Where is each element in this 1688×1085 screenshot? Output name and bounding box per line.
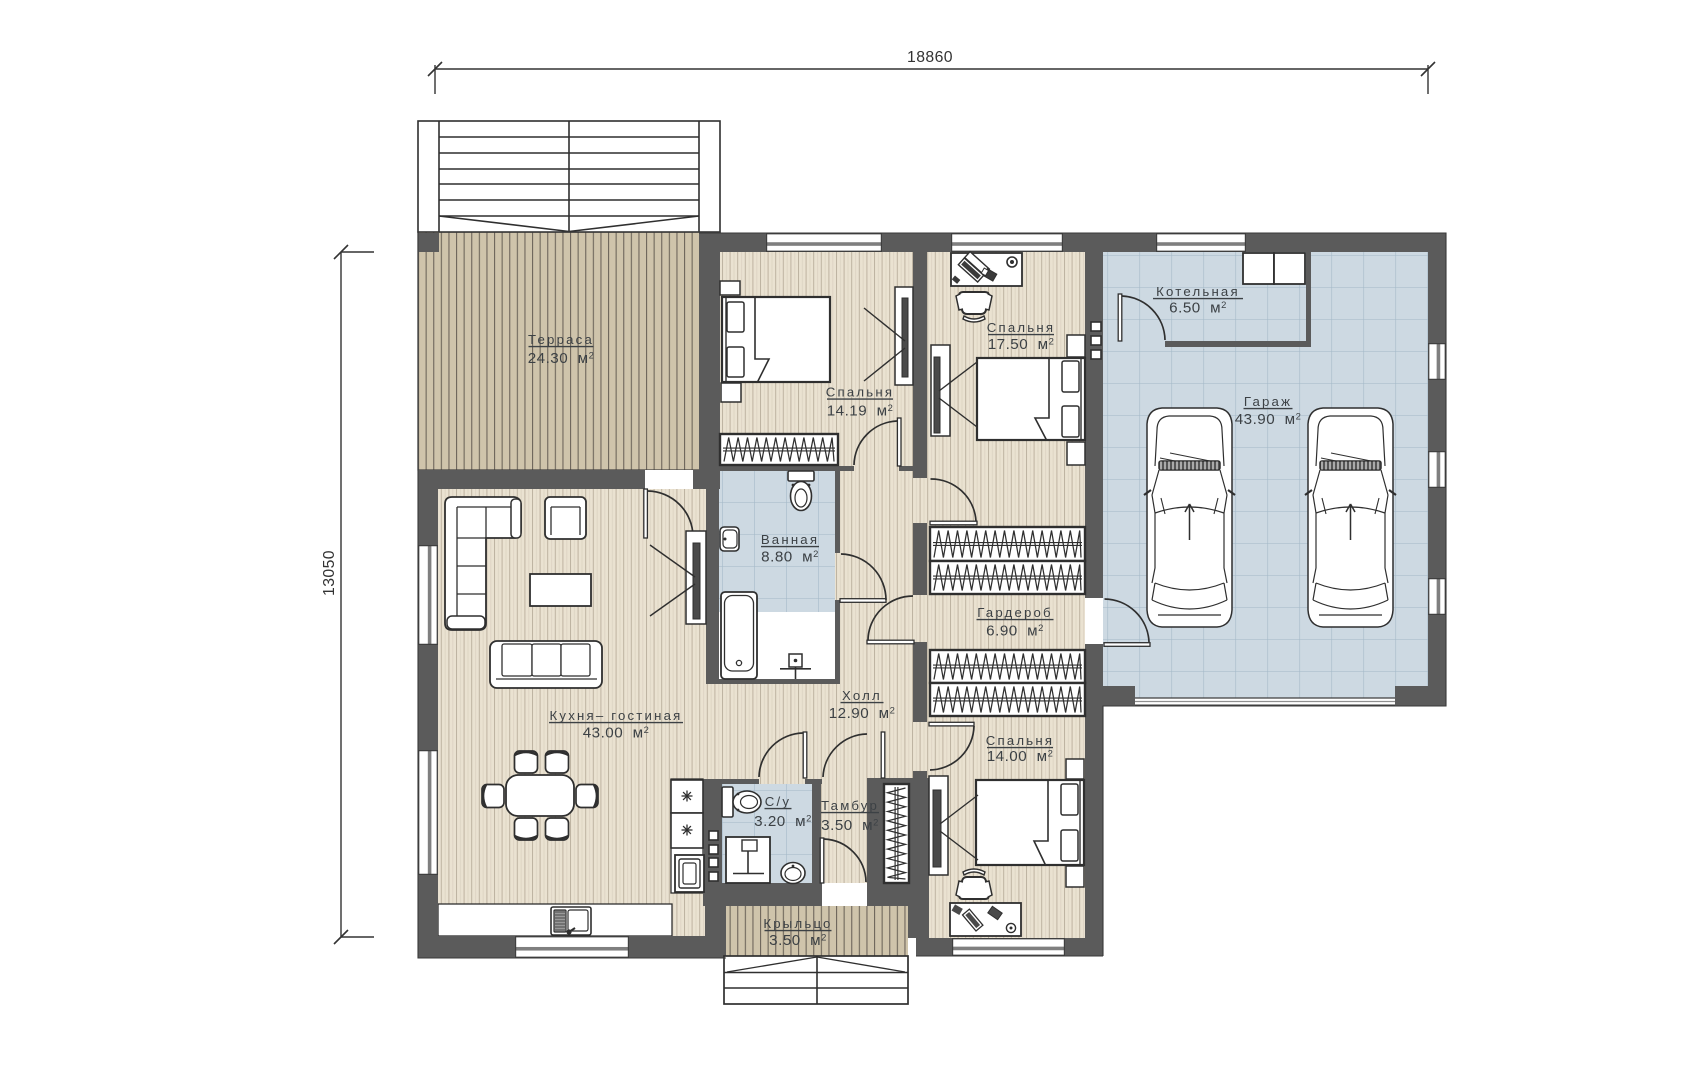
svg-text:24.30 м2: 24.30 м2 xyxy=(528,350,595,368)
svg-text:Крыльцо: Крыльцо xyxy=(763,916,832,931)
svg-text:12.90 м2: 12.90 м2 xyxy=(829,705,896,723)
svg-text:14.19 м2: 14.19 м2 xyxy=(827,402,894,420)
svg-text:Гараж: Гараж xyxy=(1244,394,1292,409)
svg-text:Спальня: Спальня xyxy=(987,320,1055,335)
svg-text:Спальня: Спальня xyxy=(986,733,1054,748)
svg-text:Тамбур: Тамбур xyxy=(821,798,879,813)
svg-text:С/у: С/у xyxy=(765,794,791,809)
svg-text:Кухня– гостиная: Кухня– гостиная xyxy=(550,708,683,723)
svg-text:Терраса: Терраса xyxy=(528,332,594,347)
svg-text:3.50 м2: 3.50 м2 xyxy=(769,932,827,950)
svg-text:Котельная: Котельная xyxy=(1156,284,1240,299)
svg-text:43.90 м2: 43.90 м2 xyxy=(1235,411,1302,429)
svg-text:3.50 м2: 3.50 м2 xyxy=(821,817,879,835)
svg-text:13050: 13050 xyxy=(321,550,338,596)
svg-text:8.80 м2: 8.80 м2 xyxy=(761,548,819,566)
svg-text:17.50 м2: 17.50 м2 xyxy=(988,336,1055,354)
svg-text:Ванная: Ванная xyxy=(761,532,819,547)
svg-text:18860: 18860 xyxy=(907,49,953,66)
svg-text:14.00 м2: 14.00 м2 xyxy=(987,748,1054,766)
svg-text:3.20 м2: 3.20 м2 xyxy=(754,813,812,831)
svg-text:Спальня: Спальня xyxy=(826,385,894,400)
svg-text:Холл: Холл xyxy=(842,688,882,703)
svg-text:43.00 м2: 43.00 м2 xyxy=(583,724,650,742)
svg-text:6.90 м2: 6.90 м2 xyxy=(986,622,1044,640)
svg-text:6.50 м2: 6.50 м2 xyxy=(1169,299,1227,317)
svg-text:Гардероб: Гардероб xyxy=(977,605,1053,620)
